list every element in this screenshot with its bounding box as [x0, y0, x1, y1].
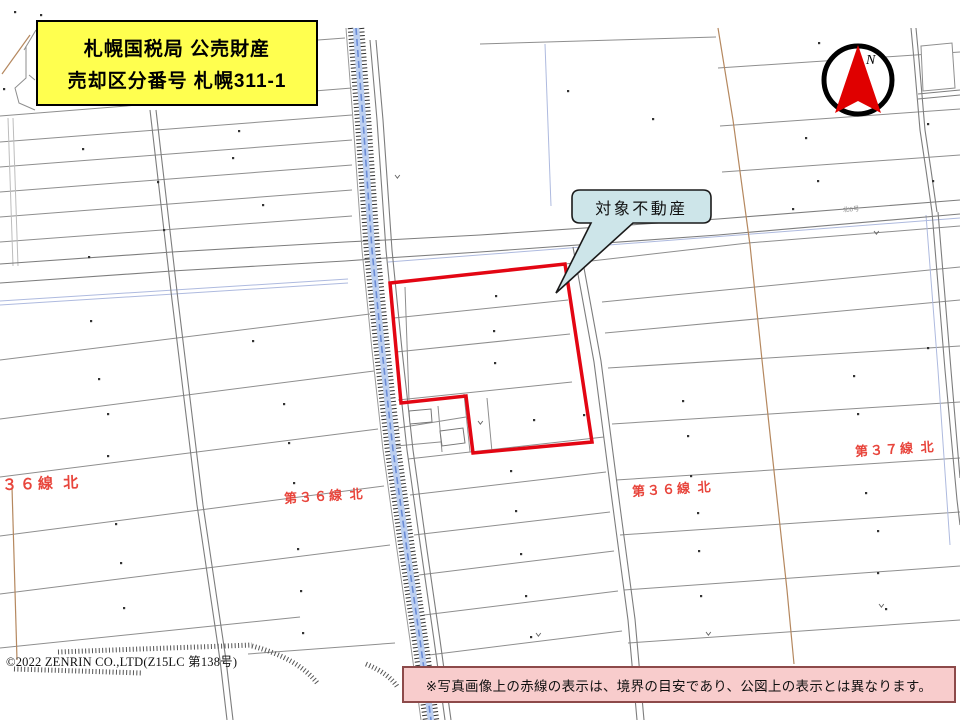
road-label-line36-left: ３６線 北 [2, 471, 82, 495]
stream [346, 28, 437, 720]
building [409, 409, 432, 424]
target-property-callout-label: 対象不動産 [572, 190, 711, 223]
building [440, 428, 465, 446]
red-line-disclaimer-box: ※写真画像上の赤線の表示は、境界の目安であり、公図上の表示とは異なります。 [402, 666, 956, 703]
roads [0, 28, 960, 720]
faint-edge-lines [8, 118, 18, 266]
buildings [409, 409, 465, 446]
stream-water [356, 28, 431, 720]
small-road-name-label: 北6号 [843, 205, 861, 214]
auction-title-box: 札幌国税局 公売財産 売却区分番号 札幌311-1 [36, 20, 318, 106]
compass-north-letter: N [865, 53, 876, 68]
boundary-line-brown [2, 28, 794, 664]
zenrin-copyright: ©2022 ZENRIN CO.,LTD(Z15LC 第138号) [6, 651, 237, 670]
compass-rose: N [824, 45, 892, 114]
zenrin-map-canvas: 北6号 N [0, 0, 960, 720]
auction-title-line1: 札幌国税局 公売財産 [84, 34, 270, 61]
auction-title-line2: 売却区分番号 札幌311-1 [68, 66, 287, 93]
public-auction-map-page: { "title_box": { "line1": "札幌国税局 公売財産", … [0, 0, 960, 720]
parcel-lines [0, 30, 960, 655]
